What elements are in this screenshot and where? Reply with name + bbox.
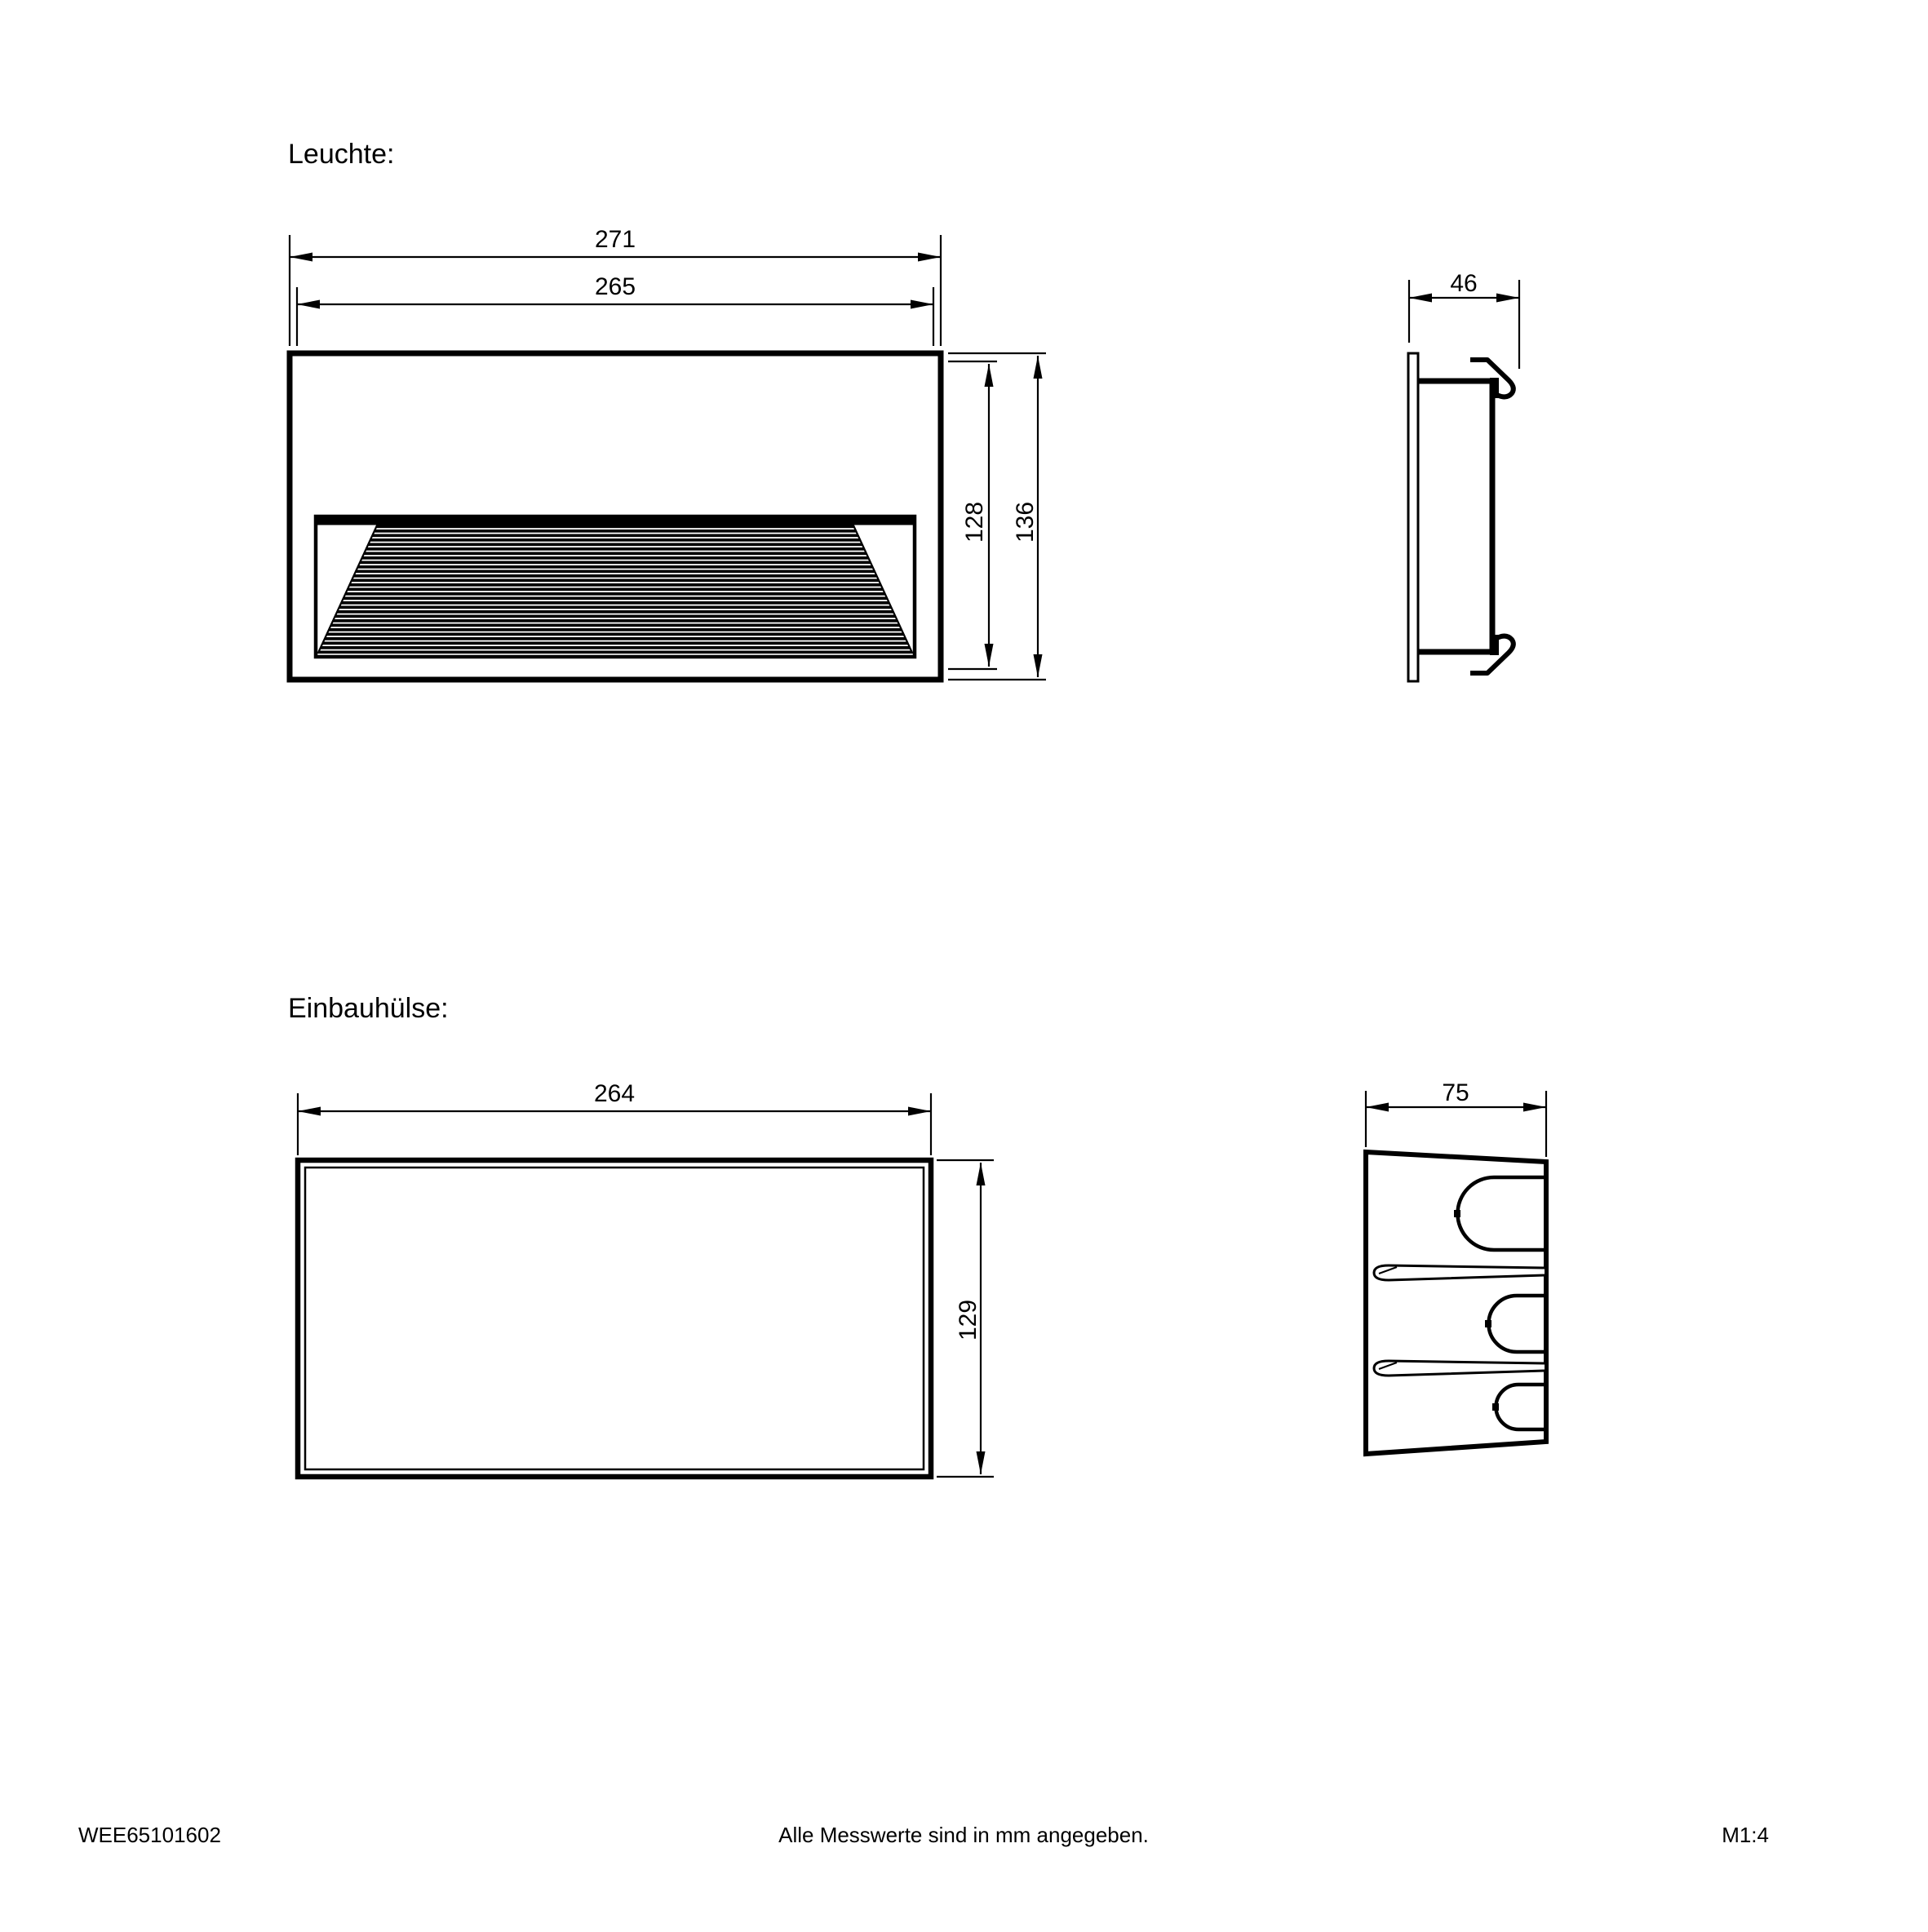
- knockout-arch-bottom: [1496, 1385, 1544, 1429]
- sleeve-front-view: 264 129: [298, 1080, 994, 1477]
- sleeve-inner-outline: [305, 1168, 924, 1469]
- luminaire-front-view: 271 265 136 128: [290, 226, 1046, 680]
- knockout-arch-top: [1458, 1177, 1545, 1250]
- dim-value-outer-height: 136: [1012, 502, 1039, 543]
- arch-tab-bottom: [1492, 1403, 1499, 1411]
- footer-doc-number: WEE65101602: [78, 1823, 221, 1847]
- knockout-arch-middle: [1489, 1296, 1544, 1352]
- arch-tab-top: [1454, 1210, 1460, 1217]
- dim-value-sleeve-width: 264: [594, 1080, 635, 1107]
- footer: WEE65101602 Alle Messwerte sind in mm an…: [78, 1823, 1769, 1847]
- spring-finger-bottom: [1374, 1361, 1545, 1376]
- louver-grille: [318, 525, 912, 653]
- section-title-sleeve: Einbauhülse:: [288, 993, 449, 1024]
- arch-tab-middle: [1485, 1320, 1491, 1327]
- footer-scale: M1:4: [1722, 1823, 1769, 1847]
- dim-value-outer-width: 271: [595, 226, 636, 253]
- dim-value-depth: 46: [1450, 270, 1477, 297]
- technical-drawing: Leuchte: Einbauhülse: 271 265 136 128: [0, 0, 1928, 1928]
- sleeve-side-outline: [1366, 1152, 1546, 1454]
- luminaire-side-view: 46: [1408, 270, 1519, 681]
- sleeve-side-view: 75: [1366, 1079, 1546, 1454]
- dim-value-sleeve-depth: 75: [1442, 1079, 1469, 1106]
- spring-finger-top: [1374, 1265, 1545, 1280]
- section-title-luminaire: Leuchte:: [288, 139, 394, 170]
- drawing-sheet: Leuchte: Einbauhülse: 271 265 136 128: [0, 0, 1928, 1928]
- dim-value-inner-height: 128: [961, 502, 988, 543]
- dim-value-sleeve-height: 129: [955, 1300, 982, 1340]
- dim-value-inner-width: 265: [595, 273, 636, 300]
- sleeve-outer-outline: [298, 1160, 931, 1477]
- side-body-outline: [1418, 381, 1492, 652]
- footer-note: Alle Messwerte sind in mm angegeben.: [778, 1823, 1149, 1847]
- side-front-plate: [1408, 353, 1418, 681]
